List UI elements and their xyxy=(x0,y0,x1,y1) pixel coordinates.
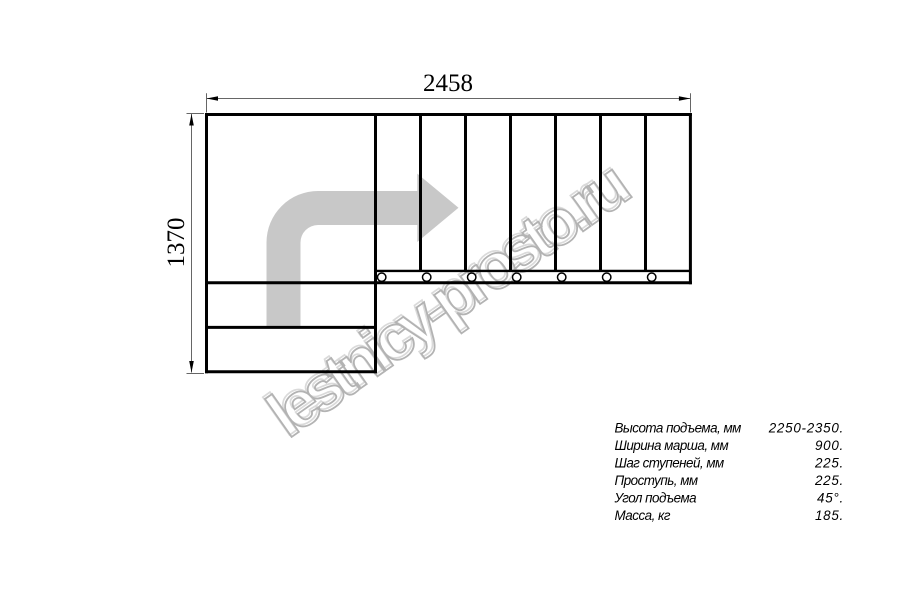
svg-text:1370: 1370 xyxy=(163,218,190,268)
svg-text:45°.: 45°. xyxy=(817,490,844,505)
svg-text:Угол подъема: Угол подъема xyxy=(614,490,697,505)
svg-text:900.: 900. xyxy=(815,438,844,453)
svg-text:Масса, кг: Масса, кг xyxy=(615,508,671,523)
svg-text:2458: 2458 xyxy=(423,70,473,97)
svg-text:185.: 185. xyxy=(815,508,844,523)
svg-text:Ширина марша, мм: Ширина марша, мм xyxy=(615,438,729,453)
svg-text:Шаг ступеней, мм: Шаг ступеней, мм xyxy=(615,455,725,470)
svg-text:2250-2350.: 2250-2350. xyxy=(768,421,844,436)
svg-text:225.: 225. xyxy=(814,473,844,488)
svg-text:Проступь, мм: Проступь, мм xyxy=(615,473,698,488)
svg-text:Высота подъема, мм: Высота подъема, мм xyxy=(615,421,742,436)
svg-text:225.: 225. xyxy=(814,455,844,470)
